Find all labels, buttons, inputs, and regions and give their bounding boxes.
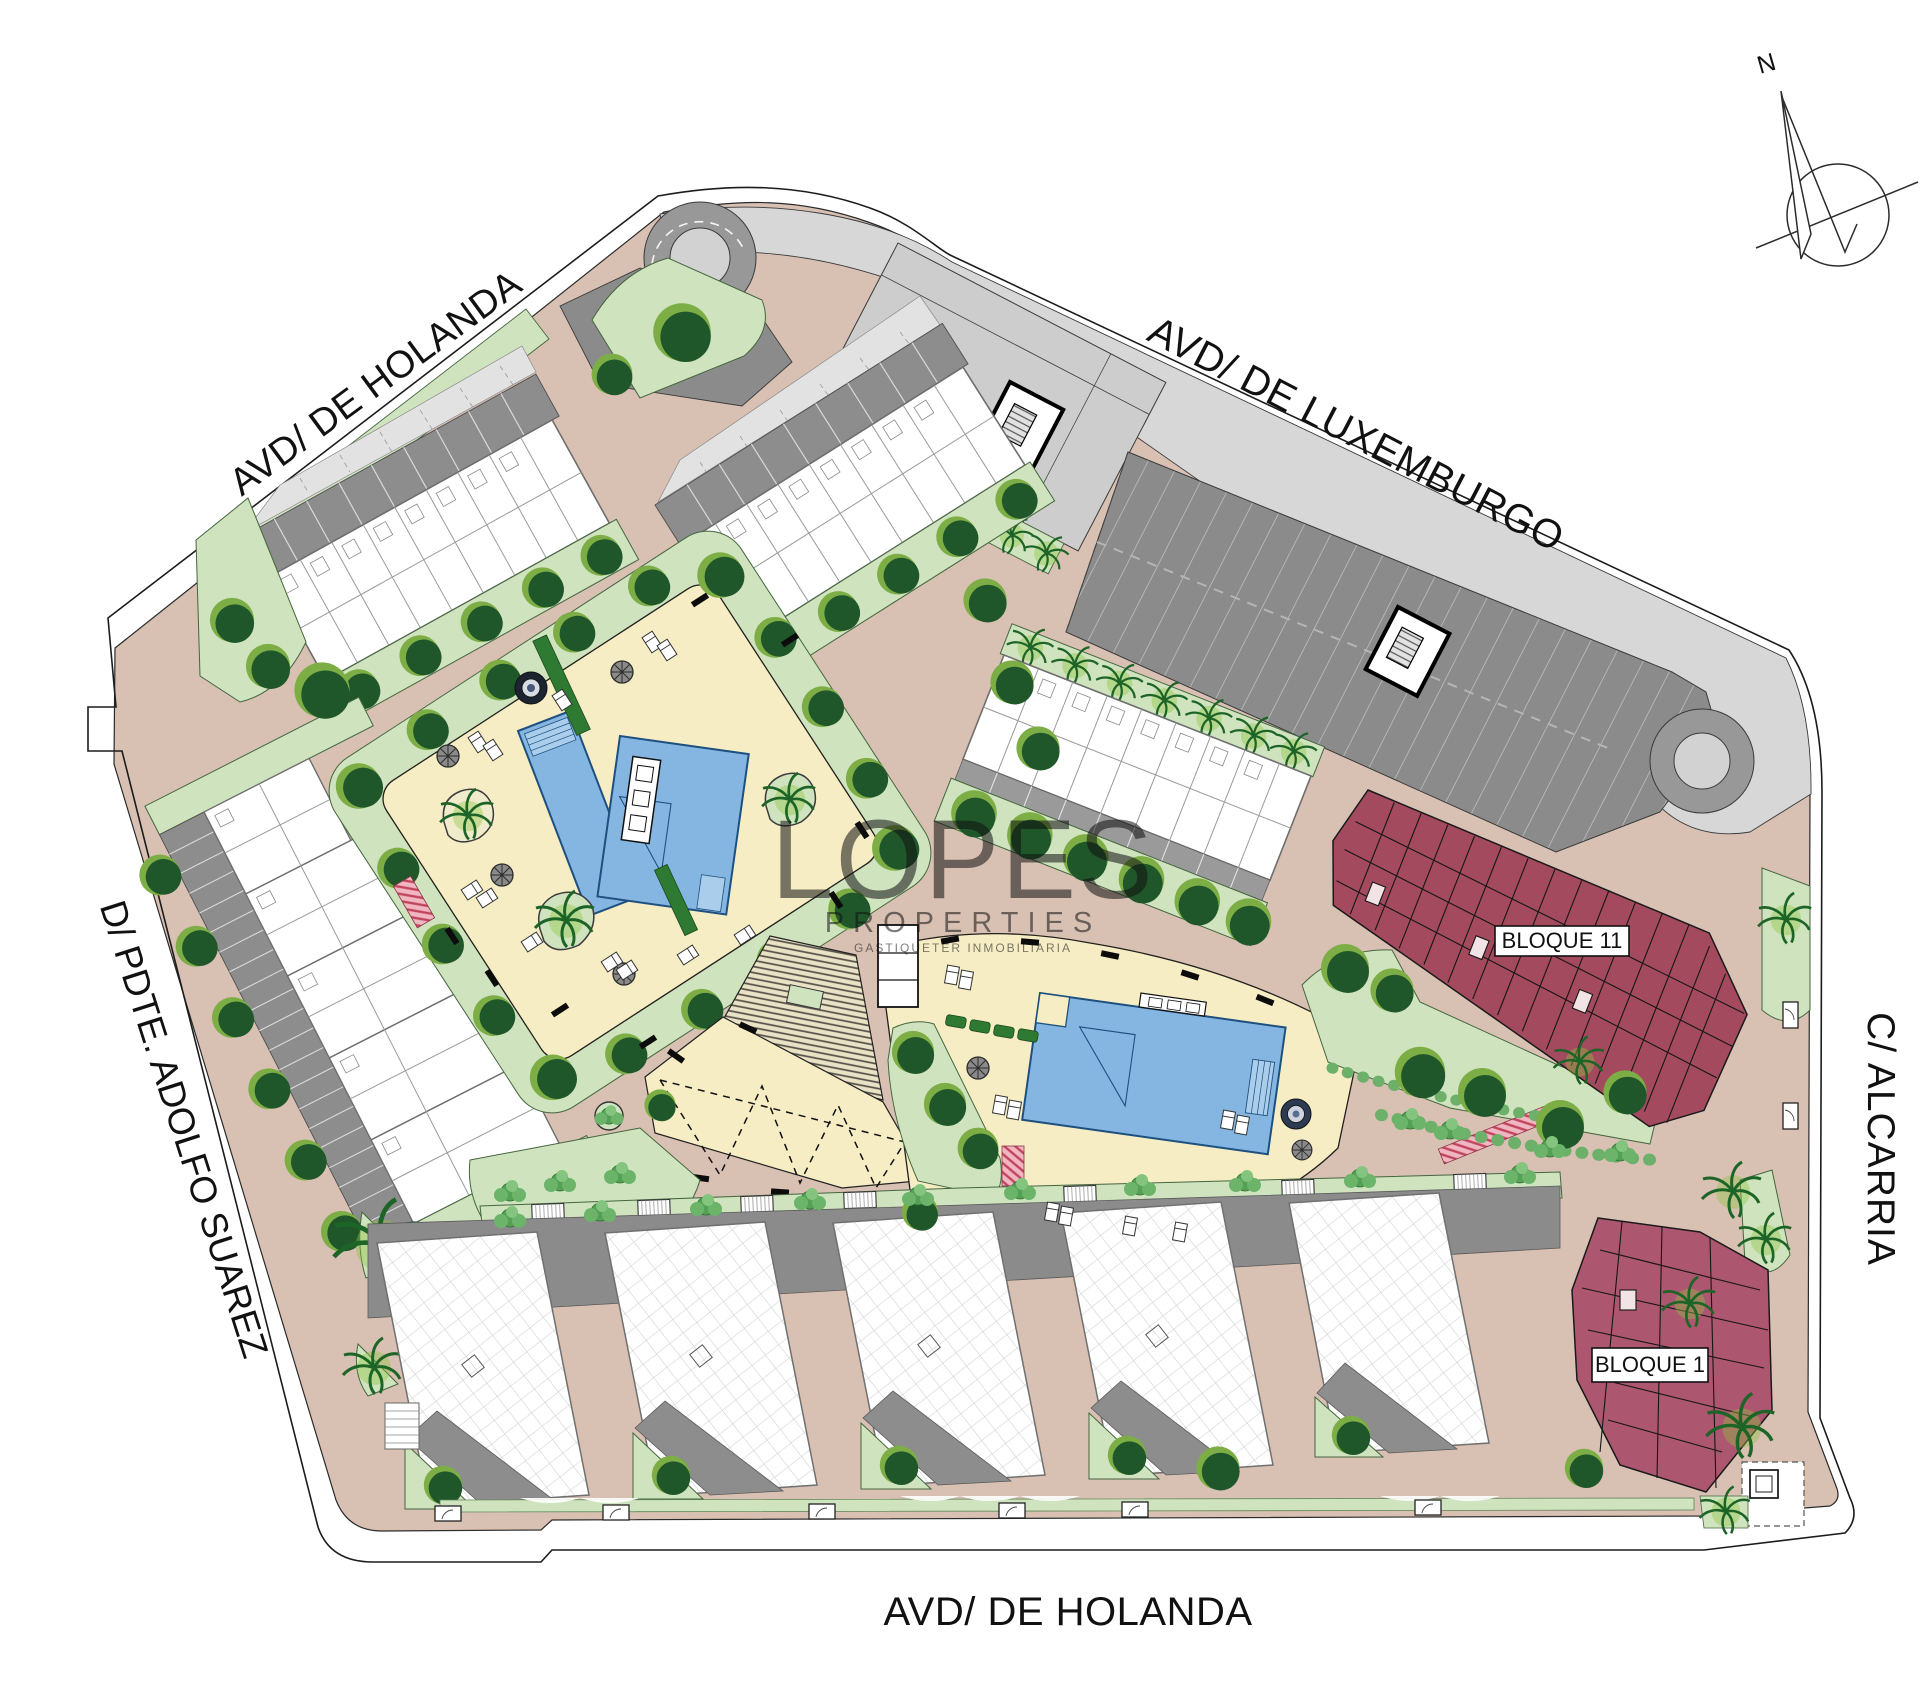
- svg-text:LOPES: LOPES: [771, 797, 1155, 922]
- svg-text:BLOQUE 11: BLOQUE 11: [1502, 928, 1623, 953]
- svg-text:AVD/ DE HOLANDA: AVD/ DE HOLANDA: [883, 1590, 1252, 1634]
- svg-text:BLOQUE 1: BLOQUE 1: [1595, 1352, 1705, 1377]
- svg-text:PROPERTIES: PROPERTIES: [825, 907, 1101, 939]
- svg-text:C/ ALCARRIA: C/ ALCARRIA: [1859, 1012, 1902, 1266]
- svg-text:GASTIQUETER INMOBILIARIA: GASTIQUETER INMOBILIARIA: [854, 941, 1072, 955]
